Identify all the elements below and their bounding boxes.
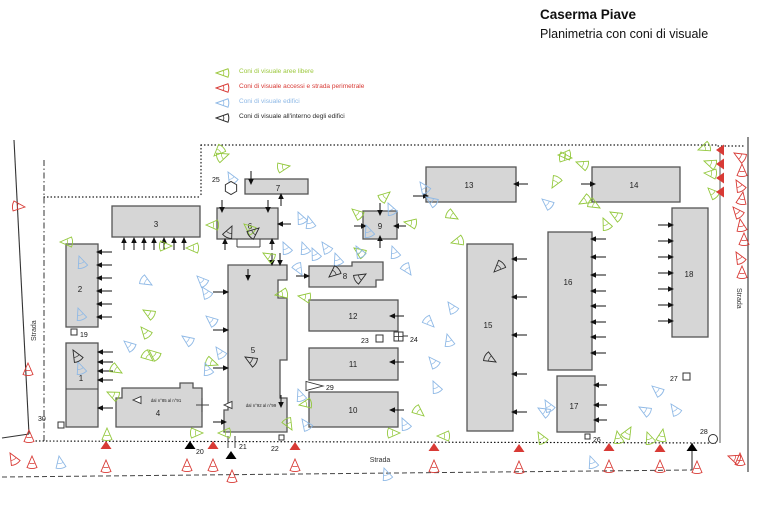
view-cone [608, 208, 624, 223]
building-number: 7 [276, 184, 281, 193]
building-7: 7 [245, 179, 308, 194]
view-cone [182, 459, 192, 472]
legend-item-3: Coni di visuale all'interno degli edific… [215, 109, 364, 124]
building-number: 4 [156, 409, 161, 418]
marker-label: 30 [38, 416, 46, 423]
view-cone [637, 403, 653, 418]
building-17: 17 [557, 376, 595, 432]
view-cone [732, 149, 748, 164]
gate-marker [226, 451, 237, 459]
view-cone [397, 416, 411, 432]
square-marker [683, 373, 690, 380]
view-cone [297, 291, 311, 303]
view-cone [137, 324, 153, 340]
building-number: 15 [484, 321, 493, 330]
building-12: 12 [309, 300, 398, 331]
view-cone [737, 164, 747, 177]
view-cone [536, 404, 552, 419]
view-cone [277, 161, 291, 173]
view-cone [379, 466, 393, 481]
marker-label: 24 [410, 337, 418, 344]
view-cone [203, 312, 219, 328]
view-cone-icon [215, 111, 235, 123]
legend-item-label: Coni di visuale all'interno degli edific… [239, 113, 345, 120]
hexagon-marker [225, 182, 236, 195]
view-cone [574, 157, 589, 171]
view-cone [704, 168, 717, 179]
view-cone [293, 210, 307, 226]
view-cone [330, 251, 344, 266]
view-cone [437, 431, 450, 441]
legend-item-label: Coni di visuale accessi e strada perimet… [239, 83, 364, 90]
marker-label: 28 [700, 429, 708, 436]
view-cone [139, 274, 155, 289]
gate-marker [604, 443, 615, 451]
view-cone [450, 235, 465, 248]
view-cone [737, 266, 747, 279]
view-cone [612, 430, 624, 444]
gate-marker [185, 441, 196, 449]
view-cone [442, 333, 455, 348]
view-cone [598, 216, 612, 232]
building-number: 10 [349, 406, 358, 415]
building-number: 5 [251, 346, 256, 355]
view-cone [190, 428, 203, 438]
building-8: 8 [309, 262, 383, 287]
view-cone [6, 451, 21, 467]
building-6: 6 [217, 208, 278, 239]
building-number: 14 [630, 181, 639, 190]
view-cone [429, 460, 439, 473]
gate-marker [101, 441, 112, 449]
building-number: 1 [79, 374, 84, 383]
building-number: 2 [78, 285, 83, 294]
view-cone [692, 461, 702, 474]
view-cone [444, 299, 459, 315]
view-cone [23, 363, 33, 376]
view-cone [54, 455, 66, 469]
building-10: 10 [309, 392, 398, 427]
view-cone [101, 460, 111, 473]
site-plan: 1234567891011121314151617181920212223242… [0, 0, 768, 517]
view-cone [735, 218, 747, 232]
building-number: 9 [378, 222, 383, 231]
building-number: 13 [465, 181, 474, 190]
view-cone [278, 240, 292, 256]
building-number: 3 [154, 220, 159, 229]
building-number: 11 [349, 360, 358, 369]
view-arrow-head [181, 237, 187, 243]
view-cone [445, 208, 461, 223]
legend: Coni di visuale aree libereConi di visua… [215, 64, 364, 124]
marker-label: 27 [670, 376, 678, 383]
view-cone [422, 315, 438, 331]
building-number: 17 [570, 402, 579, 411]
view-cone [411, 404, 427, 420]
view-cone [141, 306, 157, 321]
view-cone [216, 149, 231, 163]
building-number: 12 [349, 312, 358, 321]
view-cone [109, 362, 125, 377]
view-cone [198, 284, 213, 300]
page-title: Caserma Piave [540, 6, 708, 25]
view-cone [318, 239, 333, 255]
view-cone [297, 240, 311, 255]
view-cone [620, 425, 635, 441]
road-label: Strada [370, 457, 391, 464]
gate-marker [290, 442, 301, 450]
boundary-line [2, 434, 29, 438]
building-number: 18 [685, 270, 694, 279]
marker-label: 19 [80, 332, 88, 339]
view-arrow-head [121, 237, 127, 243]
view-cone [12, 201, 25, 212]
view-cone [428, 379, 442, 395]
square-marker [279, 435, 284, 440]
marker-label: 22 [271, 446, 279, 453]
view-cone [179, 332, 195, 347]
boundary-line [14, 140, 29, 434]
view-cone [585, 454, 599, 469]
view-cone [649, 382, 665, 398]
building-4: 4 [116, 383, 202, 427]
circle-marker [709, 435, 718, 444]
building-outline [467, 244, 513, 431]
view-cone [227, 470, 237, 483]
view-cone [387, 428, 400, 438]
building-15: 15 [467, 244, 513, 431]
building-14: 14 [592, 167, 680, 202]
view-cone [534, 430, 549, 446]
view-cone [186, 243, 199, 253]
square-marker [376, 335, 383, 342]
marker-label: 23 [361, 338, 369, 345]
legend-item-2: Coni di visuale edifici [215, 94, 364, 109]
gate-marker [687, 443, 698, 451]
road-label: Strada [31, 320, 38, 341]
building-number: 16 [564, 278, 573, 287]
view-cone [667, 401, 682, 417]
building-annotation: dal n°85 al n°91 [151, 398, 182, 403]
legend-item-1: Coni di visuale accessi e strada perimet… [215, 79, 364, 94]
view-cone-icon [215, 66, 235, 78]
view-cone [387, 244, 401, 259]
view-cone [696, 141, 711, 155]
marker-label: 29 [326, 385, 334, 392]
building-number: 8 [343, 272, 348, 281]
building-1: 1 [66, 343, 98, 427]
gate-marker [514, 444, 525, 452]
gate-marker [655, 444, 666, 452]
view-arrow-head [131, 237, 137, 243]
legend-item-label: Coni di visuale aree libere [239, 68, 314, 75]
marker-label: 25 [212, 177, 220, 184]
view-cone [732, 250, 747, 266]
view-arrow-head [141, 237, 147, 243]
square-marker [585, 434, 590, 439]
view-cone [548, 175, 563, 191]
title-block: Caserma Piave Planimetria con coni di vi… [540, 6, 708, 44]
building-18: 18 [672, 208, 708, 337]
building-outline [548, 232, 592, 370]
view-cone [656, 428, 668, 442]
view-cone-icon [215, 81, 235, 93]
legend-item-0: Coni di visuale aree libere [215, 64, 364, 79]
building-3: 3 [112, 206, 200, 237]
boundary-line [2, 470, 692, 477]
view-cone [200, 361, 214, 376]
view-cone [290, 459, 300, 472]
view-arrow-head [151, 237, 157, 243]
view-cone [102, 428, 112, 441]
pennant-marker [306, 382, 323, 391]
view-cone [351, 244, 367, 259]
view-cone [208, 459, 218, 472]
gate-marker [208, 441, 219, 449]
view-arrow-head [171, 237, 177, 243]
view-cone [732, 178, 747, 194]
view-cone [193, 272, 209, 288]
view-cone [307, 246, 321, 262]
view-cone [539, 195, 555, 211]
building-outline [116, 383, 202, 427]
building-16: 16 [548, 232, 592, 370]
marker-label: 26 [593, 437, 601, 444]
view-cone [541, 398, 556, 414]
marker-label: 21 [239, 444, 247, 451]
view-cone [377, 188, 393, 204]
building-11: 11 [309, 348, 398, 380]
view-cone [403, 217, 417, 229]
legend-item-label: Coni di visuale edifici [239, 98, 300, 105]
building-outline [66, 343, 98, 427]
view-cone-icon [215, 96, 235, 108]
page-subtitle: Planimetria con coni di visuale [540, 25, 708, 44]
view-cone [726, 451, 741, 465]
building-annotation: dal n°92 al n°99 [246, 403, 277, 408]
view-cone [702, 156, 717, 170]
view-cone [729, 204, 745, 220]
view-cone [400, 262, 415, 278]
view-cone [210, 144, 226, 160]
marker-label: 20 [196, 449, 204, 456]
gate-marker [429, 443, 440, 451]
square-marker [71, 329, 77, 335]
view-cone [121, 337, 137, 353]
planimetry-page: Caserma Piave Planimetria con coni di vi… [0, 0, 768, 517]
view-cone [293, 387, 307, 402]
view-cone [212, 344, 227, 360]
road-label: Strada [735, 288, 742, 309]
view-cone [27, 456, 37, 469]
buildings: 123456789101112131415161718 [66, 167, 708, 432]
view-cone [425, 354, 441, 370]
building-13: 13 [426, 167, 516, 202]
view-cone [736, 191, 748, 205]
square-marker [58, 422, 64, 428]
